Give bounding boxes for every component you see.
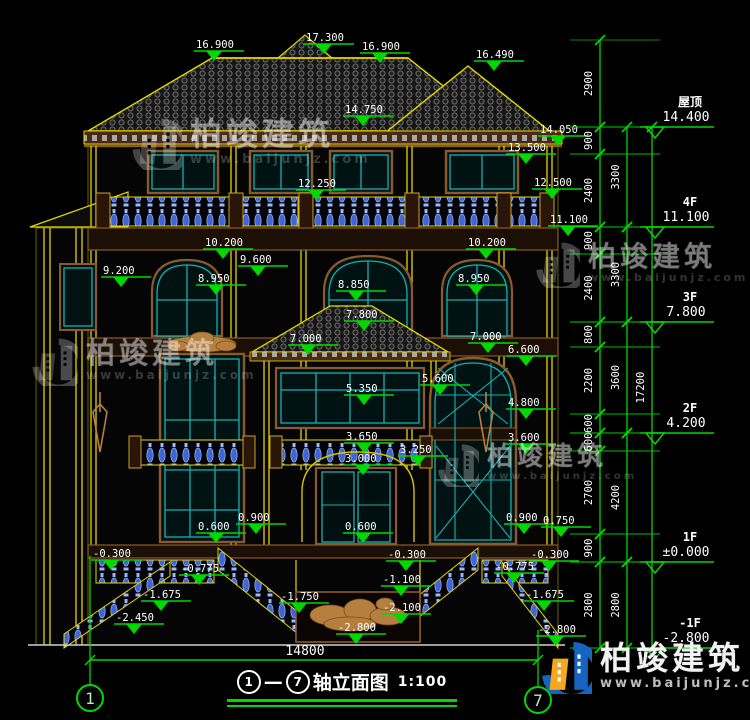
floor-name: 3F	[683, 290, 697, 304]
floor-name: 4F	[683, 195, 697, 209]
chain-dimension: 4200	[610, 485, 622, 510]
level-value: 5.600	[422, 373, 454, 385]
level-value: 14.750	[345, 104, 383, 116]
level-value: -0.300	[531, 549, 569, 561]
level-value: 9.200	[103, 265, 135, 277]
floor-elevation: -2.800	[663, 631, 710, 646]
level-value: 10.200	[205, 237, 243, 249]
level-value: 12.250	[298, 178, 336, 190]
level-value: 17.300	[306, 32, 344, 44]
level-value: 6.600	[508, 344, 540, 356]
level-value: 5.350	[346, 383, 378, 395]
level-value: 10.200	[468, 237, 506, 249]
level-value: 0.600	[345, 521, 377, 533]
floor-flag: 3F7.800	[640, 290, 714, 333]
level-value: 16.900	[196, 39, 234, 51]
floor-name: 屋顶	[678, 95, 702, 109]
level-value: -0.775	[496, 561, 534, 573]
axis-bubble-1-label: 1	[85, 689, 95, 708]
level-value: -2.450	[116, 612, 154, 624]
level-value: -1.100	[383, 574, 421, 586]
level-value: -0.300	[388, 549, 426, 561]
level-value: 7.800	[346, 309, 378, 321]
floor-elevation: 4.200	[666, 416, 705, 431]
level-value: -2.100	[383, 602, 421, 614]
title-axis-from: 1	[237, 670, 261, 694]
level-value: 3.600	[508, 432, 540, 444]
level-value: 12.500	[534, 177, 572, 189]
left-tall-window	[160, 332, 244, 542]
chain-dimension: 900	[583, 231, 595, 250]
level-value: 0.900	[238, 512, 270, 524]
floor-elevation: 11.100	[663, 210, 710, 225]
cad-elevation-canvas: 16.90017.30016.90016.49014.75014.05013.5…	[0, 0, 750, 720]
level-value: -0.300	[93, 548, 131, 560]
chain-dimension: 3600	[610, 365, 622, 390]
level-value: -2.800	[538, 624, 576, 636]
level-value: 0.600	[198, 521, 230, 533]
level-value: 13.500	[508, 142, 546, 154]
level-value: -1.675	[526, 589, 564, 601]
chain-dimension: 900	[583, 131, 595, 150]
floor-name: 2F	[683, 401, 697, 415]
level-value: -2.800	[338, 622, 376, 634]
level-value: -0.775	[181, 563, 219, 575]
floor-flag: 4F11.100	[640, 195, 714, 238]
level-value: 3.250	[400, 444, 432, 456]
floor-name: -1F	[679, 616, 701, 630]
axis-bubble-7-label: 7	[533, 691, 543, 710]
chain-dimension: 2800	[610, 592, 622, 617]
title-axis-to: 7	[286, 670, 310, 694]
level-value: -1.675	[143, 589, 181, 601]
chain-dimension: 2800	[583, 592, 595, 617]
chain-dimension: 900	[583, 539, 595, 558]
elevation-drawing: 16.90017.30016.90016.49014.75014.05013.5…	[0, 0, 750, 720]
level-value: 3.650	[346, 431, 378, 443]
balcony-2f	[129, 436, 432, 468]
level-value: 14.050	[540, 124, 578, 136]
chain-dimension: 600	[583, 433, 595, 452]
level-marker: 16.490	[474, 49, 524, 71]
chain-dimension: 800	[583, 325, 595, 344]
title-scale: 1:100	[398, 674, 448, 690]
bottom-dimension: 14800	[85, 644, 543, 665]
floor-elevation: ±0.000	[663, 545, 710, 560]
chain-dimension: 2900	[583, 71, 595, 96]
level-value: 16.900	[362, 41, 400, 53]
chain-dimension: 2700	[583, 480, 595, 505]
bottom-dimension-value: 14800	[285, 644, 324, 659]
chain-dimension: 600	[583, 414, 595, 433]
title-name: 轴立面图	[313, 668, 389, 695]
level-value: 7.000	[470, 331, 502, 343]
floor-flag: -1F-2.800	[640, 616, 714, 659]
chain-dimension: 2200	[583, 368, 595, 393]
chain-dimension: 2400	[583, 178, 595, 203]
chain-dimension: 3300	[610, 164, 622, 189]
title-underline	[227, 699, 457, 707]
level-value: 4.800	[508, 397, 540, 409]
floor-elevation: 7.800	[666, 305, 705, 320]
chain-dimension: 17200	[635, 372, 647, 404]
floor-elevation: 14.400	[663, 110, 710, 125]
level-value: 0.750	[543, 515, 575, 527]
level-value: 7.000	[290, 333, 322, 345]
level-value: 3.000	[345, 453, 377, 465]
chain-dimension: 3300	[610, 262, 622, 287]
level-value: 9.600	[240, 254, 272, 266]
floor-flag: 2F4.200	[640, 401, 714, 444]
center-2f-window	[276, 368, 424, 428]
chain-dimension: 2400	[583, 275, 595, 300]
level-value: 0.900	[506, 512, 538, 524]
floor-flag: 1F±0.000	[640, 530, 714, 573]
level-value: -1.750	[281, 591, 319, 603]
level-value: 8.950	[458, 273, 490, 285]
level-value: 8.850	[338, 279, 370, 291]
floor-flag: 屋顶14.400	[640, 95, 714, 138]
drawing-title-block: 1 — 7 轴立面图 1:100	[212, 668, 472, 707]
level-value: 11.100	[550, 214, 588, 226]
floor-name: 1F	[683, 530, 697, 544]
level-value: 8.950	[198, 273, 230, 285]
title-dash: —	[264, 671, 283, 693]
floor-elevation-flags: 屋顶14.4004F11.1003F7.8002F4.2001F±0.000-1…	[640, 95, 714, 659]
level-value: 16.490	[476, 49, 514, 61]
